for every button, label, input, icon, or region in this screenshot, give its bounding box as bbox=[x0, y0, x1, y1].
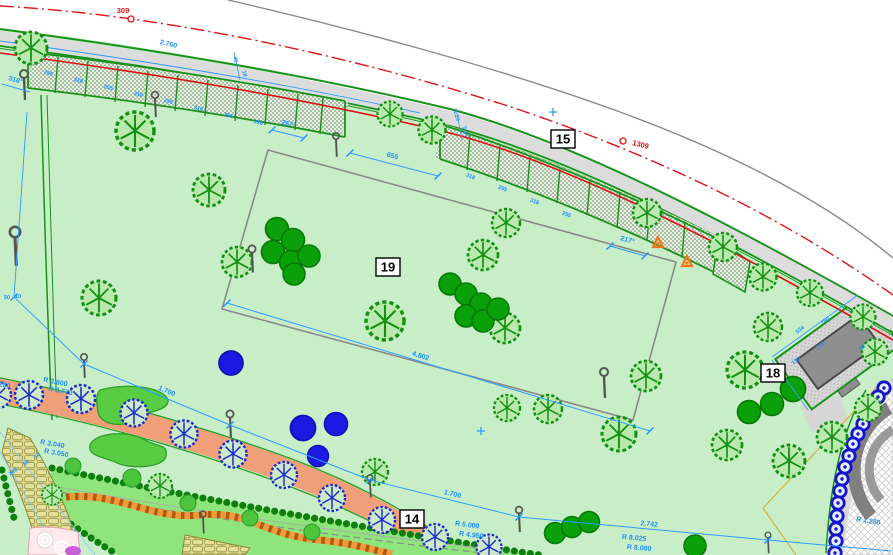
tree-icon bbox=[534, 395, 562, 423]
blue-tree-icon bbox=[171, 421, 198, 448]
tree-icon bbox=[378, 102, 403, 127]
playground-area bbox=[28, 527, 81, 555]
shrub-icon bbox=[283, 263, 305, 285]
site-plan-canvas: 309 1309 bbox=[0, 0, 893, 555]
blue-tree-icon bbox=[319, 485, 345, 511]
blue-tree-icon bbox=[15, 381, 43, 409]
tree-icon bbox=[727, 352, 763, 388]
tree-icon bbox=[750, 264, 777, 291]
boundary-point-marker bbox=[128, 16, 134, 22]
tree-icon bbox=[193, 174, 225, 206]
svg-text:19: 19 bbox=[381, 260, 395, 275]
blue-shrub-icon bbox=[325, 413, 348, 436]
zone-label-18: 18 bbox=[761, 364, 785, 382]
blue-shrub-icon bbox=[219, 351, 243, 375]
shrub-ball-icon bbox=[836, 473, 848, 485]
tree-icon bbox=[817, 422, 847, 452]
blue-shrub-icon bbox=[291, 416, 316, 441]
shrub-ball-icon bbox=[847, 438, 859, 450]
blue-tree-icon bbox=[369, 507, 395, 533]
shrub-ball-icon bbox=[832, 497, 844, 509]
tree-icon bbox=[116, 112, 154, 150]
shrub-icon bbox=[684, 535, 706, 555]
shrub-icon bbox=[487, 298, 509, 320]
zone-label-15: 15 bbox=[551, 130, 575, 148]
shrub-ball-icon bbox=[830, 523, 842, 535]
tree-icon bbox=[631, 361, 661, 391]
blue-tree-icon bbox=[121, 400, 148, 427]
tree-icon bbox=[633, 199, 661, 227]
tree-icon bbox=[82, 281, 116, 315]
tree-icon bbox=[492, 209, 520, 237]
tree-icon bbox=[797, 280, 823, 306]
blue-tree-icon bbox=[271, 462, 297, 488]
tree-icon bbox=[754, 313, 782, 341]
blue-tree-icon bbox=[422, 524, 448, 550]
tree-icon bbox=[773, 445, 805, 477]
dim-label: 10 bbox=[15, 294, 21, 300]
svg-text:18: 18 bbox=[766, 366, 780, 381]
blue-tree-icon bbox=[220, 441, 247, 468]
tree-icon bbox=[494, 395, 520, 421]
tree-icon bbox=[855, 395, 881, 421]
shrub-icon bbox=[761, 393, 784, 416]
tree-icon bbox=[15, 32, 47, 64]
tree-icon bbox=[419, 117, 446, 144]
site-plan-page: 309 1309 bbox=[0, 0, 893, 555]
zone-label-19: 19 bbox=[376, 258, 400, 276]
tree-icon bbox=[148, 474, 172, 498]
shrub-icon bbox=[579, 512, 600, 533]
svg-text:14: 14 bbox=[405, 512, 420, 527]
tree-icon bbox=[862, 339, 888, 365]
svg-text:15: 15 bbox=[556, 132, 570, 147]
blue-shrub-icon bbox=[308, 446, 329, 467]
shrub-ball-icon bbox=[839, 461, 851, 473]
shrub-ball-icon bbox=[831, 510, 843, 522]
tree-icon bbox=[709, 233, 737, 261]
tree-icon bbox=[222, 247, 252, 277]
shrub-ball-icon bbox=[834, 485, 846, 497]
tree-icon bbox=[366, 302, 404, 340]
tree-icon bbox=[468, 240, 498, 270]
boundary-point-marker bbox=[620, 138, 626, 144]
boundary-point-label: 309 bbox=[117, 6, 130, 15]
tree-icon bbox=[851, 305, 876, 330]
shrub-ball-icon bbox=[829, 547, 841, 555]
zone-label-14: 14 bbox=[400, 510, 424, 528]
tree-icon bbox=[712, 430, 742, 460]
tree-icon bbox=[42, 485, 62, 505]
shrub-icon bbox=[738, 401, 761, 424]
shrub-icon bbox=[298, 245, 320, 267]
dim-label: 50 bbox=[4, 295, 10, 301]
